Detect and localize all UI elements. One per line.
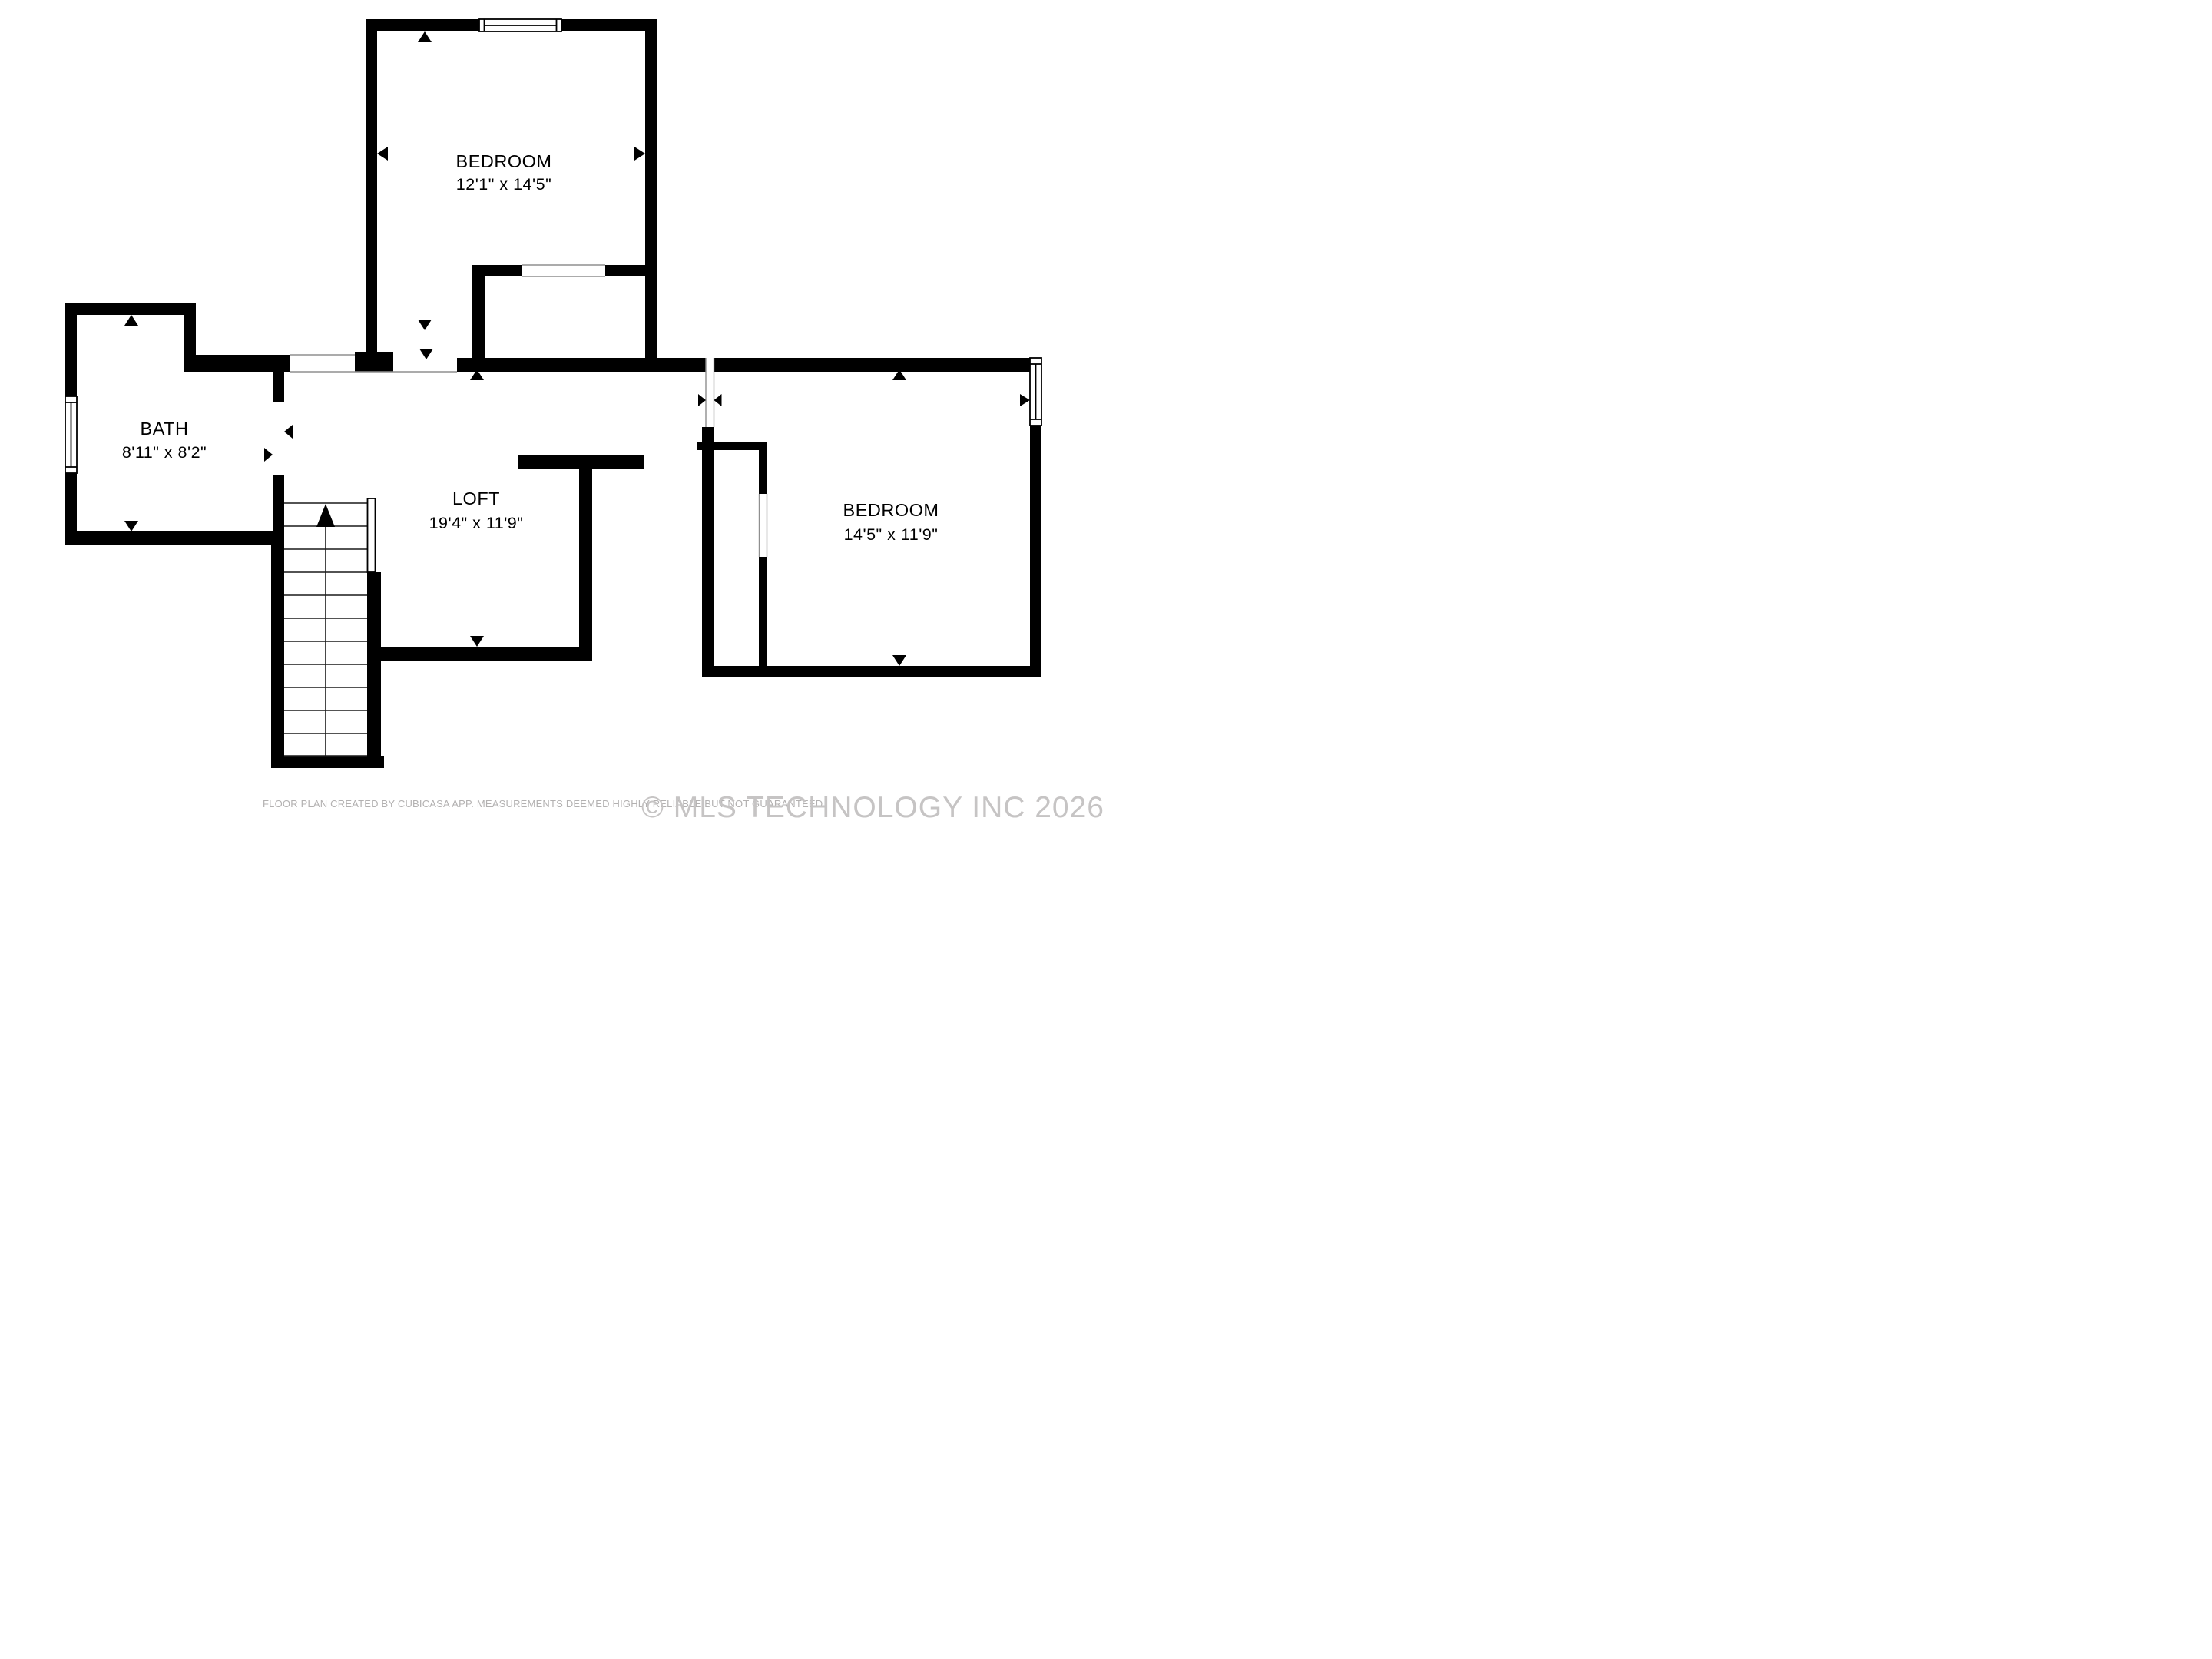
door-swing-arrow-icon: [284, 425, 293, 439]
loft-south-wall: [367, 647, 592, 661]
right-bedroom-west-wall: [702, 427, 714, 666]
measurement-arrow-icon: [124, 315, 138, 326]
opening-lines: [290, 265, 767, 557]
measurement-arrow-icon: [634, 147, 645, 161]
room-label-top-bedroom: BEDROOM 12'1" x 14'5": [456, 151, 552, 194]
door-swing-arrow-icon: [714, 394, 722, 406]
bath-step-wall-horizontal: [184, 355, 290, 372]
top-bedroom-south-wall-left: [472, 265, 522, 276]
right-closet-north-wall: [697, 442, 767, 450]
measurement-arrow-icon: [892, 655, 906, 666]
measurement-arrow-icon: [377, 147, 388, 161]
measurement-arrow-icon: [1020, 394, 1030, 406]
staircase: [284, 498, 376, 756]
window-symbol-top-bedroom: [479, 19, 561, 31]
stairwell-west-wall: [271, 545, 284, 768]
floor-plan-canvas: BEDROOM 12'1" x 14'5" BATH 8'11" x 8'2" …: [0, 0, 1106, 829]
measurement-arrow-icon: [418, 320, 432, 330]
room-dimensions: 12'1" x 14'5": [456, 175, 551, 194]
stairwell-east-wall: [367, 572, 381, 768]
loft-east-wall: [579, 469, 592, 661]
stairwell-south-wall: [271, 756, 384, 768]
bath-north-wall: [65, 303, 196, 315]
room-dimensions: 14'5" x 11'9": [844, 525, 939, 544]
room-name: BEDROOM: [843, 500, 939, 520]
bath-step-wall-vertical: [184, 315, 196, 355]
watermark-text: © MLS TECHNOLOGY INC 2026: [641, 791, 1104, 824]
room-label-bath: BATH 8'11" x 8'2": [122, 419, 207, 462]
room-name: BEDROOM: [456, 151, 552, 171]
door-swing-arrow-icon: [698, 394, 706, 406]
top-bedroom-closet-west-wall: [472, 276, 485, 358]
right-closet-east-wall-upper: [759, 442, 767, 494]
bath-east-wall-upper: [273, 372, 284, 402]
measurement-arrow-icon: [418, 31, 432, 42]
door-swing-arrow-icon: [264, 448, 273, 462]
top-bedroom-east-wall: [645, 19, 657, 358]
room-name: LOFT: [452, 488, 500, 508]
stair-handrail: [368, 498, 376, 572]
bath-south-wall: [65, 531, 283, 545]
right-closet-east-wall-lower: [759, 557, 767, 666]
room-dimensions: 19'4" x 11'9": [429, 514, 524, 532]
door-swing-arrow-icon: [419, 349, 433, 359]
room-label-loft: LOFT 19'4" x 11'9": [429, 488, 524, 532]
measurement-arrow-icon: [124, 521, 138, 531]
measurement-arrow-icon: [470, 636, 484, 647]
corridor-wall-cap: [355, 352, 393, 372]
right-bedroom-north-wall: [714, 358, 1041, 372]
room-dimensions: 8'11" x 8'2": [122, 443, 207, 462]
corridor-south-wall: [457, 358, 706, 372]
room-name: BATH: [141, 419, 189, 439]
top-bedroom-south-wall-right: [605, 265, 645, 276]
window-symbol-bath: [65, 396, 77, 473]
right-bedroom-south-wall: [702, 666, 1041, 677]
window-symbol-right-bedroom: [1030, 358, 1041, 426]
room-label-right-bedroom: BEDROOM 14'5" x 11'9": [843, 500, 939, 544]
loft-northeast-wall: [518, 455, 644, 469]
top-bedroom-west-wall: [366, 19, 377, 352]
stairs-up-arrow-icon: [316, 504, 335, 527]
arrow-markers: [124, 31, 1030, 666]
